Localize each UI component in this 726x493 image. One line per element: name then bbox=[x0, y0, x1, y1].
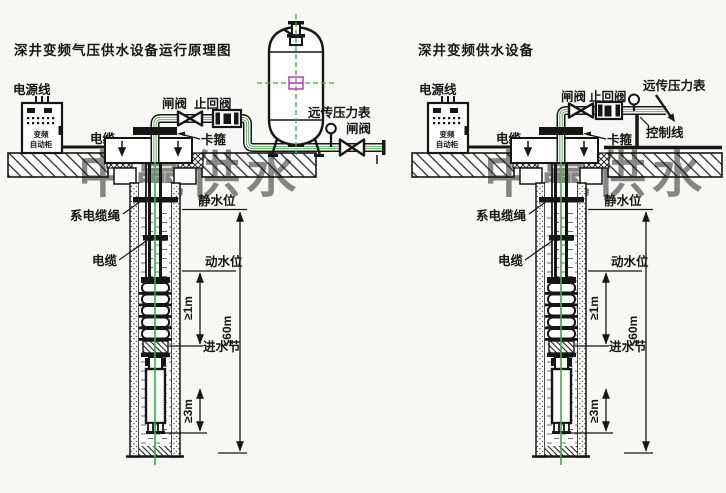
background bbox=[0, 0, 726, 493]
pipe-end-cap bbox=[382, 140, 386, 155]
casing-wall-left bbox=[130, 183, 139, 457]
schematic-svg: 电源线 变频 自动柜 电缆 中赢供水 bbox=[0, 0, 726, 493]
dynamic-level-label: 动水位 bbox=[205, 254, 243, 269]
check-valve bbox=[596, 102, 622, 119]
cabinet-indicator bbox=[27, 108, 35, 113]
right-diagram-title: 深井变频供水设备 bbox=[418, 42, 534, 58]
cabinet-handle bbox=[59, 126, 62, 135]
dim-1m-label: ≥1m bbox=[181, 296, 195, 320]
check-valve bbox=[213, 110, 241, 127]
pressure-gauge-label: 远传压力表 bbox=[308, 105, 371, 120]
control-line-label: 控制线 bbox=[646, 125, 684, 140]
dim-3m-label: ≥3m bbox=[181, 399, 195, 423]
cabinet-label-line2: 自动柜 bbox=[30, 139, 53, 149]
casing-wall-right bbox=[171, 183, 180, 457]
well-cable-label: 电缆 bbox=[92, 253, 118, 268]
pressure-gauge-label: 远传压力表 bbox=[643, 78, 706, 93]
dim-60m-label: ≤60m bbox=[220, 316, 234, 347]
drawing-canvas: 电源线 变频 自动柜 电缆 中赢供水 bbox=[0, 0, 726, 493]
left-diagram-title: 深井变频气压供水设备运行原理图 bbox=[14, 42, 232, 58]
power-line-label: 电源线 bbox=[13, 82, 51, 97]
cable-rope-label: 系电缆绳 bbox=[70, 208, 121, 223]
check-valve-label: 止回阀 bbox=[194, 96, 232, 111]
gate-valve-label: 闸阀 bbox=[561, 89, 586, 104]
static-level-label: 静水位 bbox=[198, 193, 236, 208]
cabinet-label-line1: 变频 bbox=[34, 129, 49, 139]
outlet-gate-valve-label: 闸阀 bbox=[346, 121, 371, 136]
gate-valve-label: 闸阀 bbox=[162, 96, 187, 111]
check-valve-label: 止回阀 bbox=[589, 89, 627, 104]
cabinet-indicator bbox=[44, 108, 52, 113]
clamp-label: 卡箍 bbox=[201, 132, 227, 147]
